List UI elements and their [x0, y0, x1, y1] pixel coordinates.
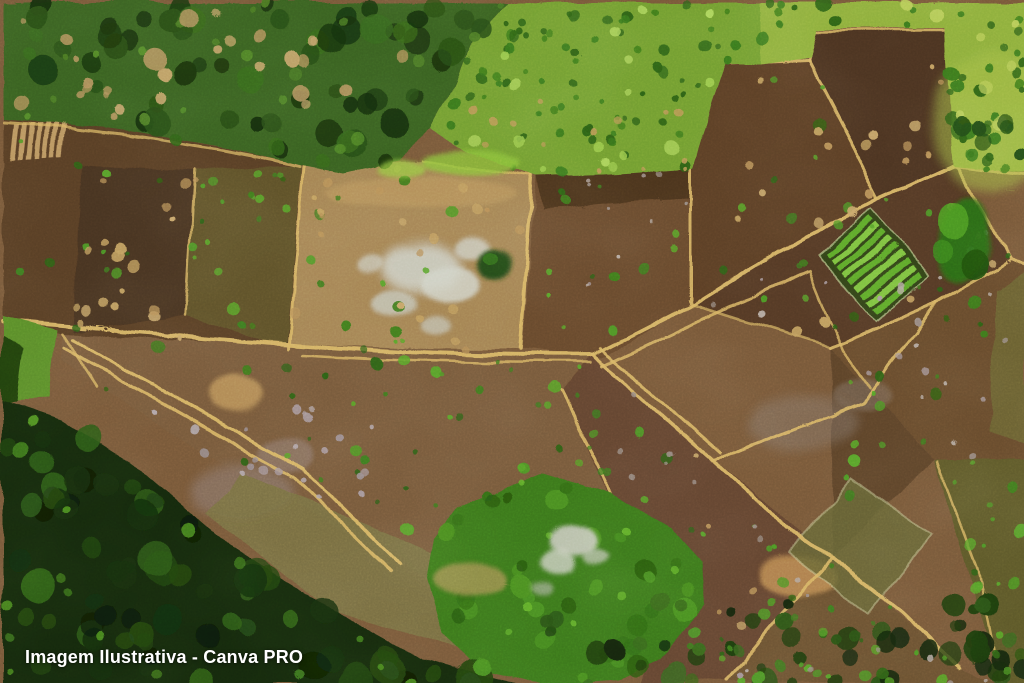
watermark-text: Imagem Ilustrativa - Canva PRO	[25, 647, 303, 668]
grain-texture	[0, 0, 1024, 683]
aerial-photo: Imagem Ilustrativa - Canva PRO	[0, 0, 1024, 683]
aerial-photo-canvas	[0, 0, 1024, 683]
